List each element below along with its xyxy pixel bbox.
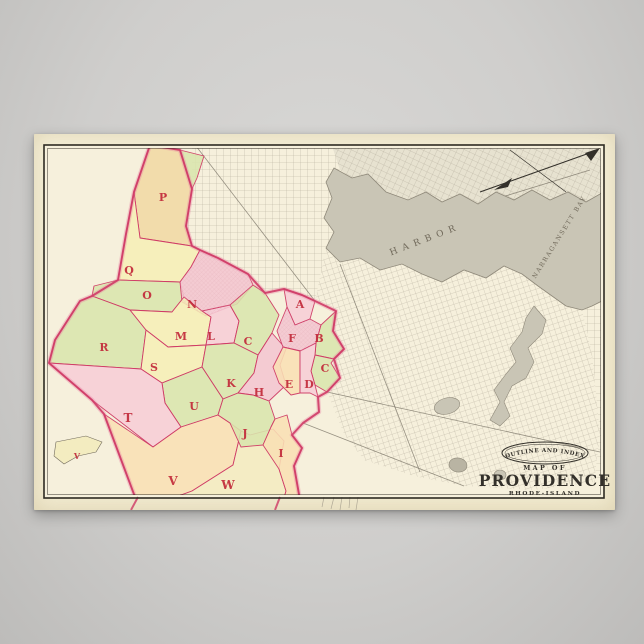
cartouche-city-title: PROVIDENCE xyxy=(479,471,612,490)
boundary-bleed xyxy=(275,497,280,510)
index-letter-M: M xyxy=(175,330,187,343)
index-letter-R: R xyxy=(99,341,109,354)
map-poster: PQONRMLCSKHEDAFBCTUJIVWVHARBORNARRAGANSE… xyxy=(34,134,615,510)
index-letter-T: T xyxy=(124,411,133,425)
index-letter-U: U xyxy=(189,400,199,413)
index-letter-L: L xyxy=(207,330,215,343)
index-letter-S: S xyxy=(150,361,158,374)
street-bleed xyxy=(356,497,358,510)
index-letter-V: V xyxy=(167,474,178,488)
index-letter-K: K xyxy=(226,377,236,390)
index-letter-P: P xyxy=(159,191,167,204)
index-letter-O: O xyxy=(142,289,152,302)
index-letter-I: I xyxy=(278,447,283,460)
boundary-bleed xyxy=(131,497,138,510)
index-letter-V-island: V xyxy=(73,451,81,461)
index-letter-N: N xyxy=(187,298,197,311)
cartouche-state: RHODE-ISLAND xyxy=(509,491,581,497)
index-letter-C: C xyxy=(321,362,330,375)
index-letter-A: A xyxy=(295,298,305,311)
index-letter-H: H xyxy=(254,386,264,399)
index-letter-B: B xyxy=(314,332,323,345)
index-letter-D: D xyxy=(304,378,314,391)
index-letter-F: F xyxy=(288,332,296,345)
street-bleed xyxy=(340,497,342,510)
index-letter-J: J xyxy=(241,427,247,440)
index-letter-Q: Q xyxy=(124,264,134,277)
index-letter-C: C xyxy=(244,335,253,348)
studio-backdrop: PQONRMLCSKHEDAFBCTUJIVWVHARBORNARRAGANSE… xyxy=(0,0,644,644)
providence-outline-index-map: PQONRMLCSKHEDAFBCTUJIVWVHARBORNARRAGANSE… xyxy=(34,134,615,510)
index-letter-E: E xyxy=(285,378,293,391)
index-letter-W: W xyxy=(220,478,235,492)
